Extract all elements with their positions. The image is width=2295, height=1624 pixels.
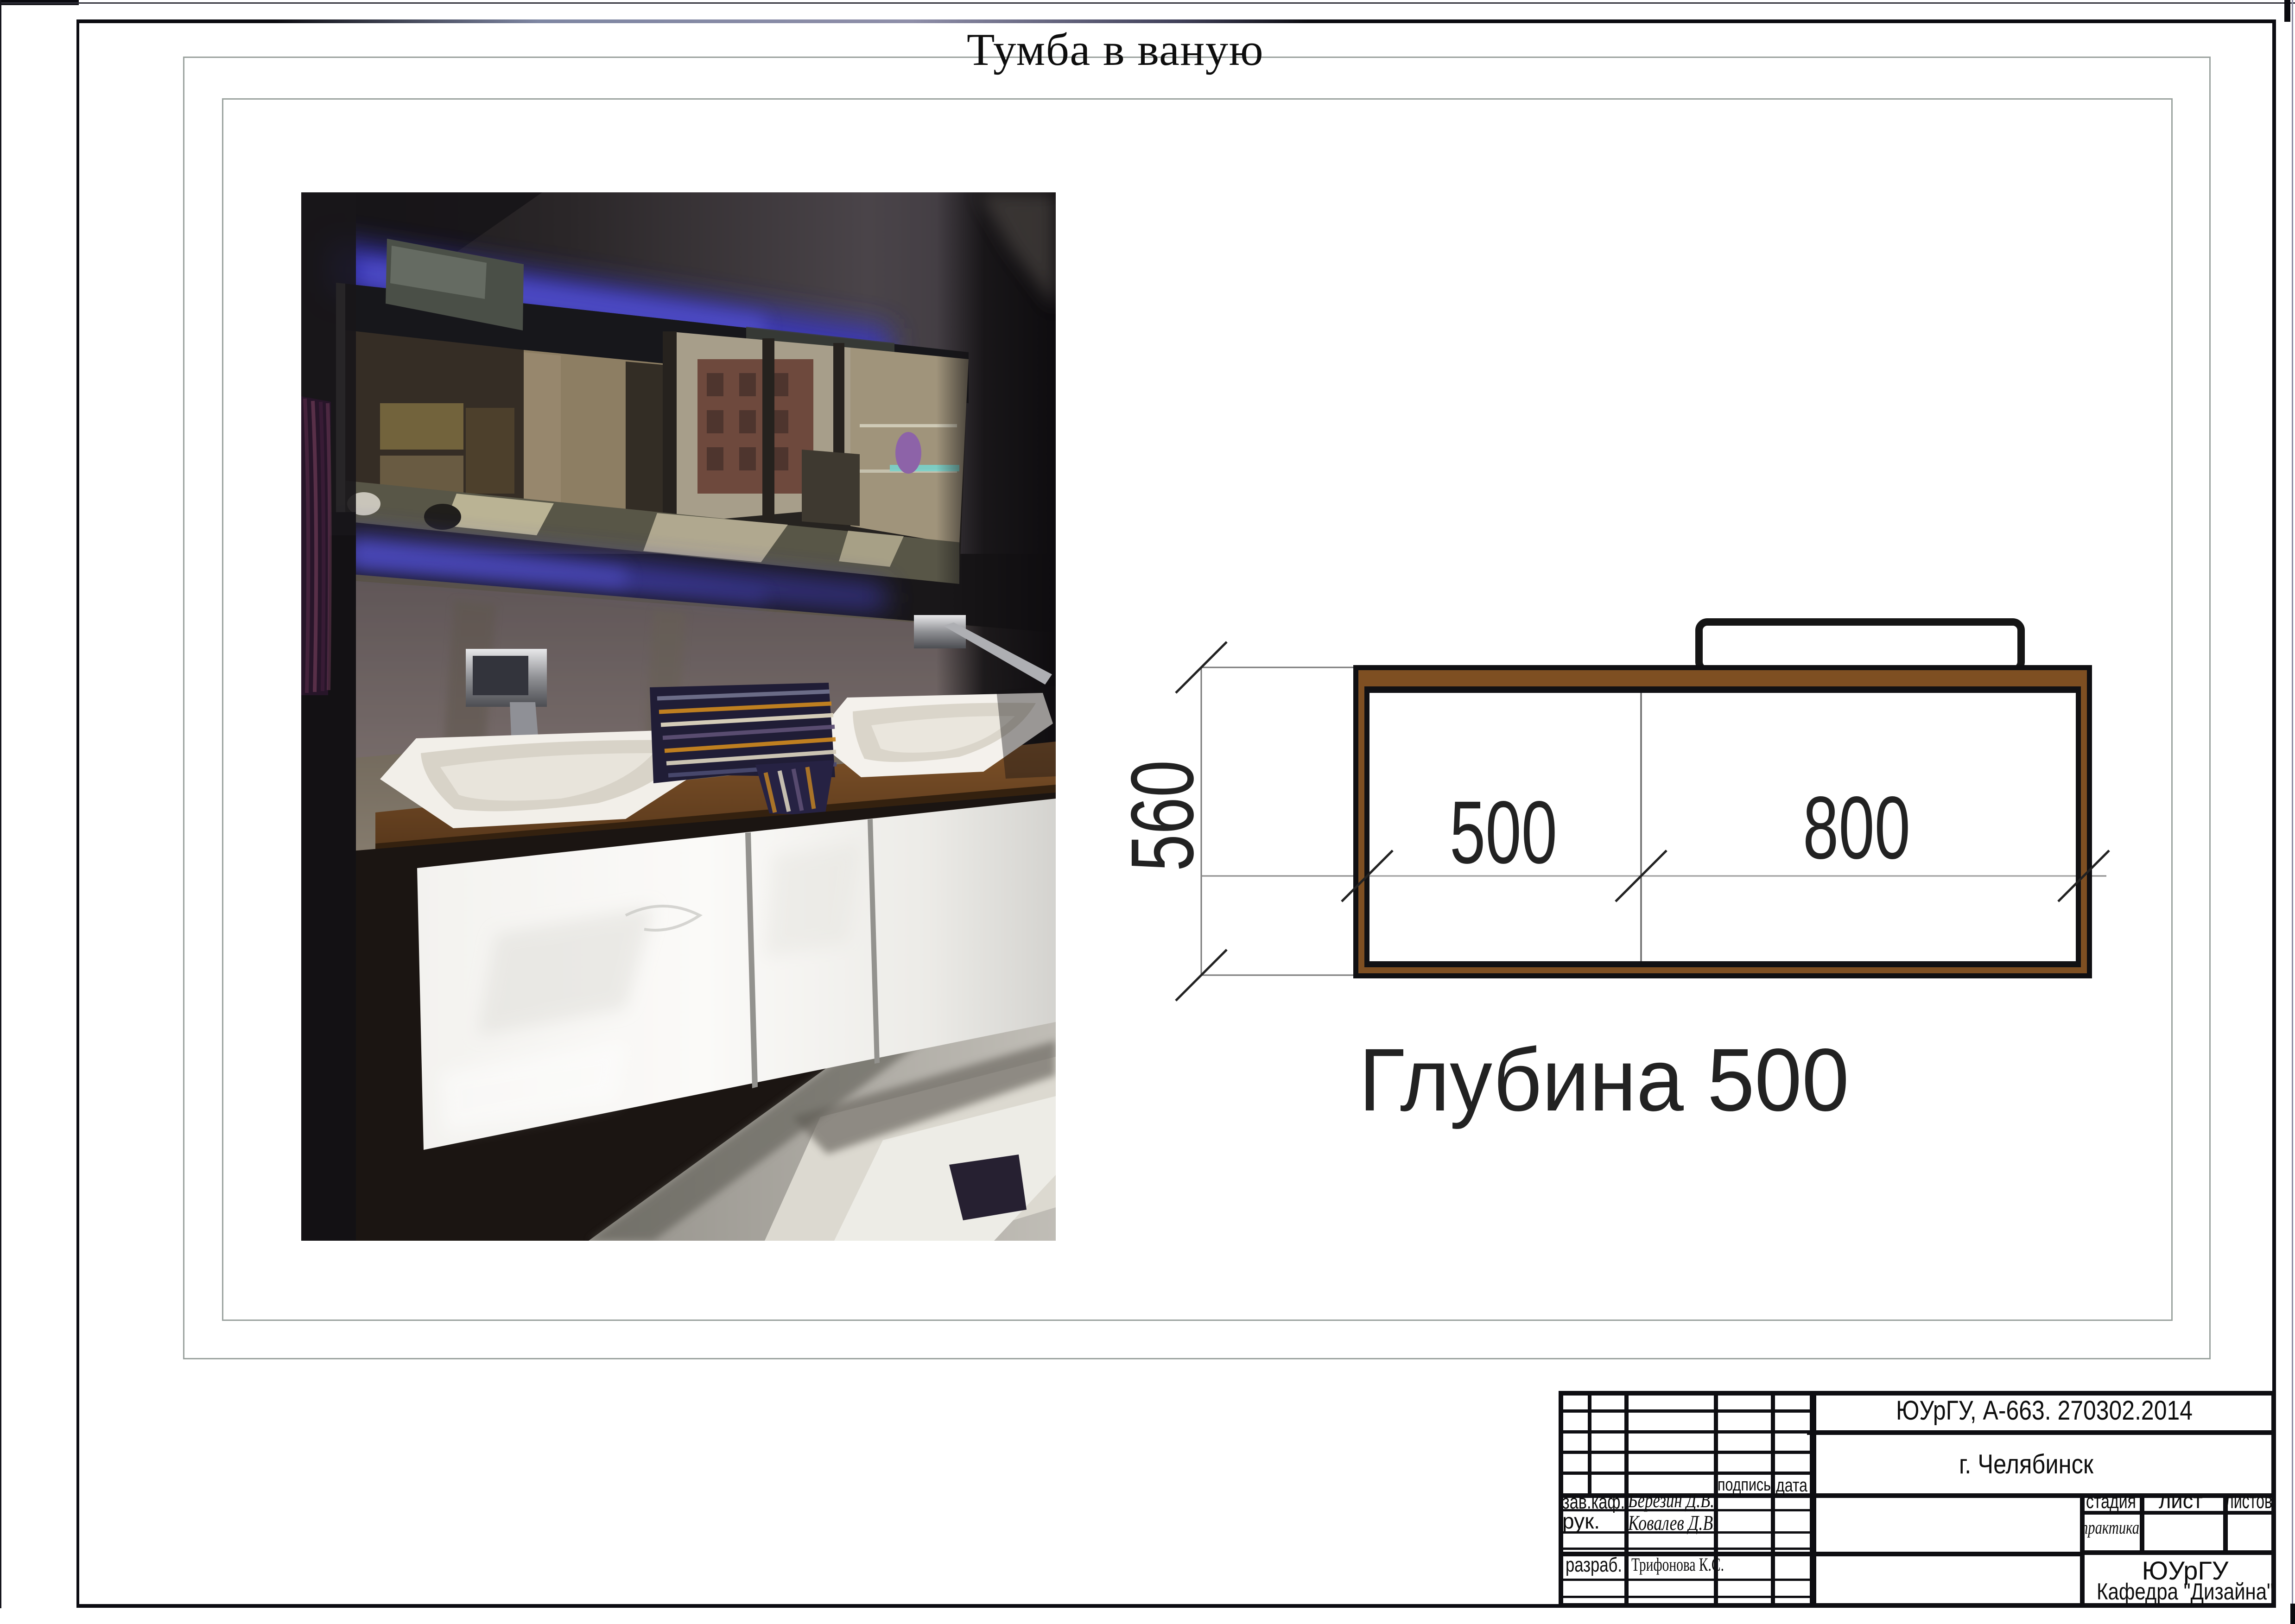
svg-text:дата: дата [1776, 1475, 1808, 1496]
svg-text:500: 500 [1450, 782, 1557, 882]
svg-text:Трифонова К.С.: Трифонова К.С. [1631, 1554, 1724, 1575]
svg-text:рук.: рук. [1562, 1509, 1600, 1533]
svg-text:разраб.: разраб. [1566, 1554, 1622, 1576]
svg-text:лист: лист [2159, 1489, 2203, 1513]
svg-text:800: 800 [1803, 778, 1910, 877]
svg-text:подпись: подпись [1718, 1475, 1771, 1495]
svg-text:Кафедра "Дизайна": Кафедра "Дизайна" [2097, 1579, 2274, 1605]
svg-text:стадия: стадия [2086, 1490, 2136, 1513]
svg-text:Ковалев Д.В.: Ковалев Д.В. [1628, 1511, 1717, 1535]
svg-text:практика: практика [2081, 1517, 2139, 1538]
svg-text:Березин Д.В.: Березин Д.В. [1628, 1488, 1714, 1512]
svg-text:560: 560 [1126, 760, 1212, 871]
svg-text:Глубина 500: Глубина 500 [1359, 1030, 1849, 1129]
svg-text:листов: листов [2225, 1489, 2272, 1513]
svg-text:г. Челябинск: г. Челябинск [1959, 1449, 2094, 1479]
svg-text:ЮУрГУ, А-663. 270302.2014: ЮУрГУ, А-663. 270302.2014 [1896, 1396, 2193, 1426]
